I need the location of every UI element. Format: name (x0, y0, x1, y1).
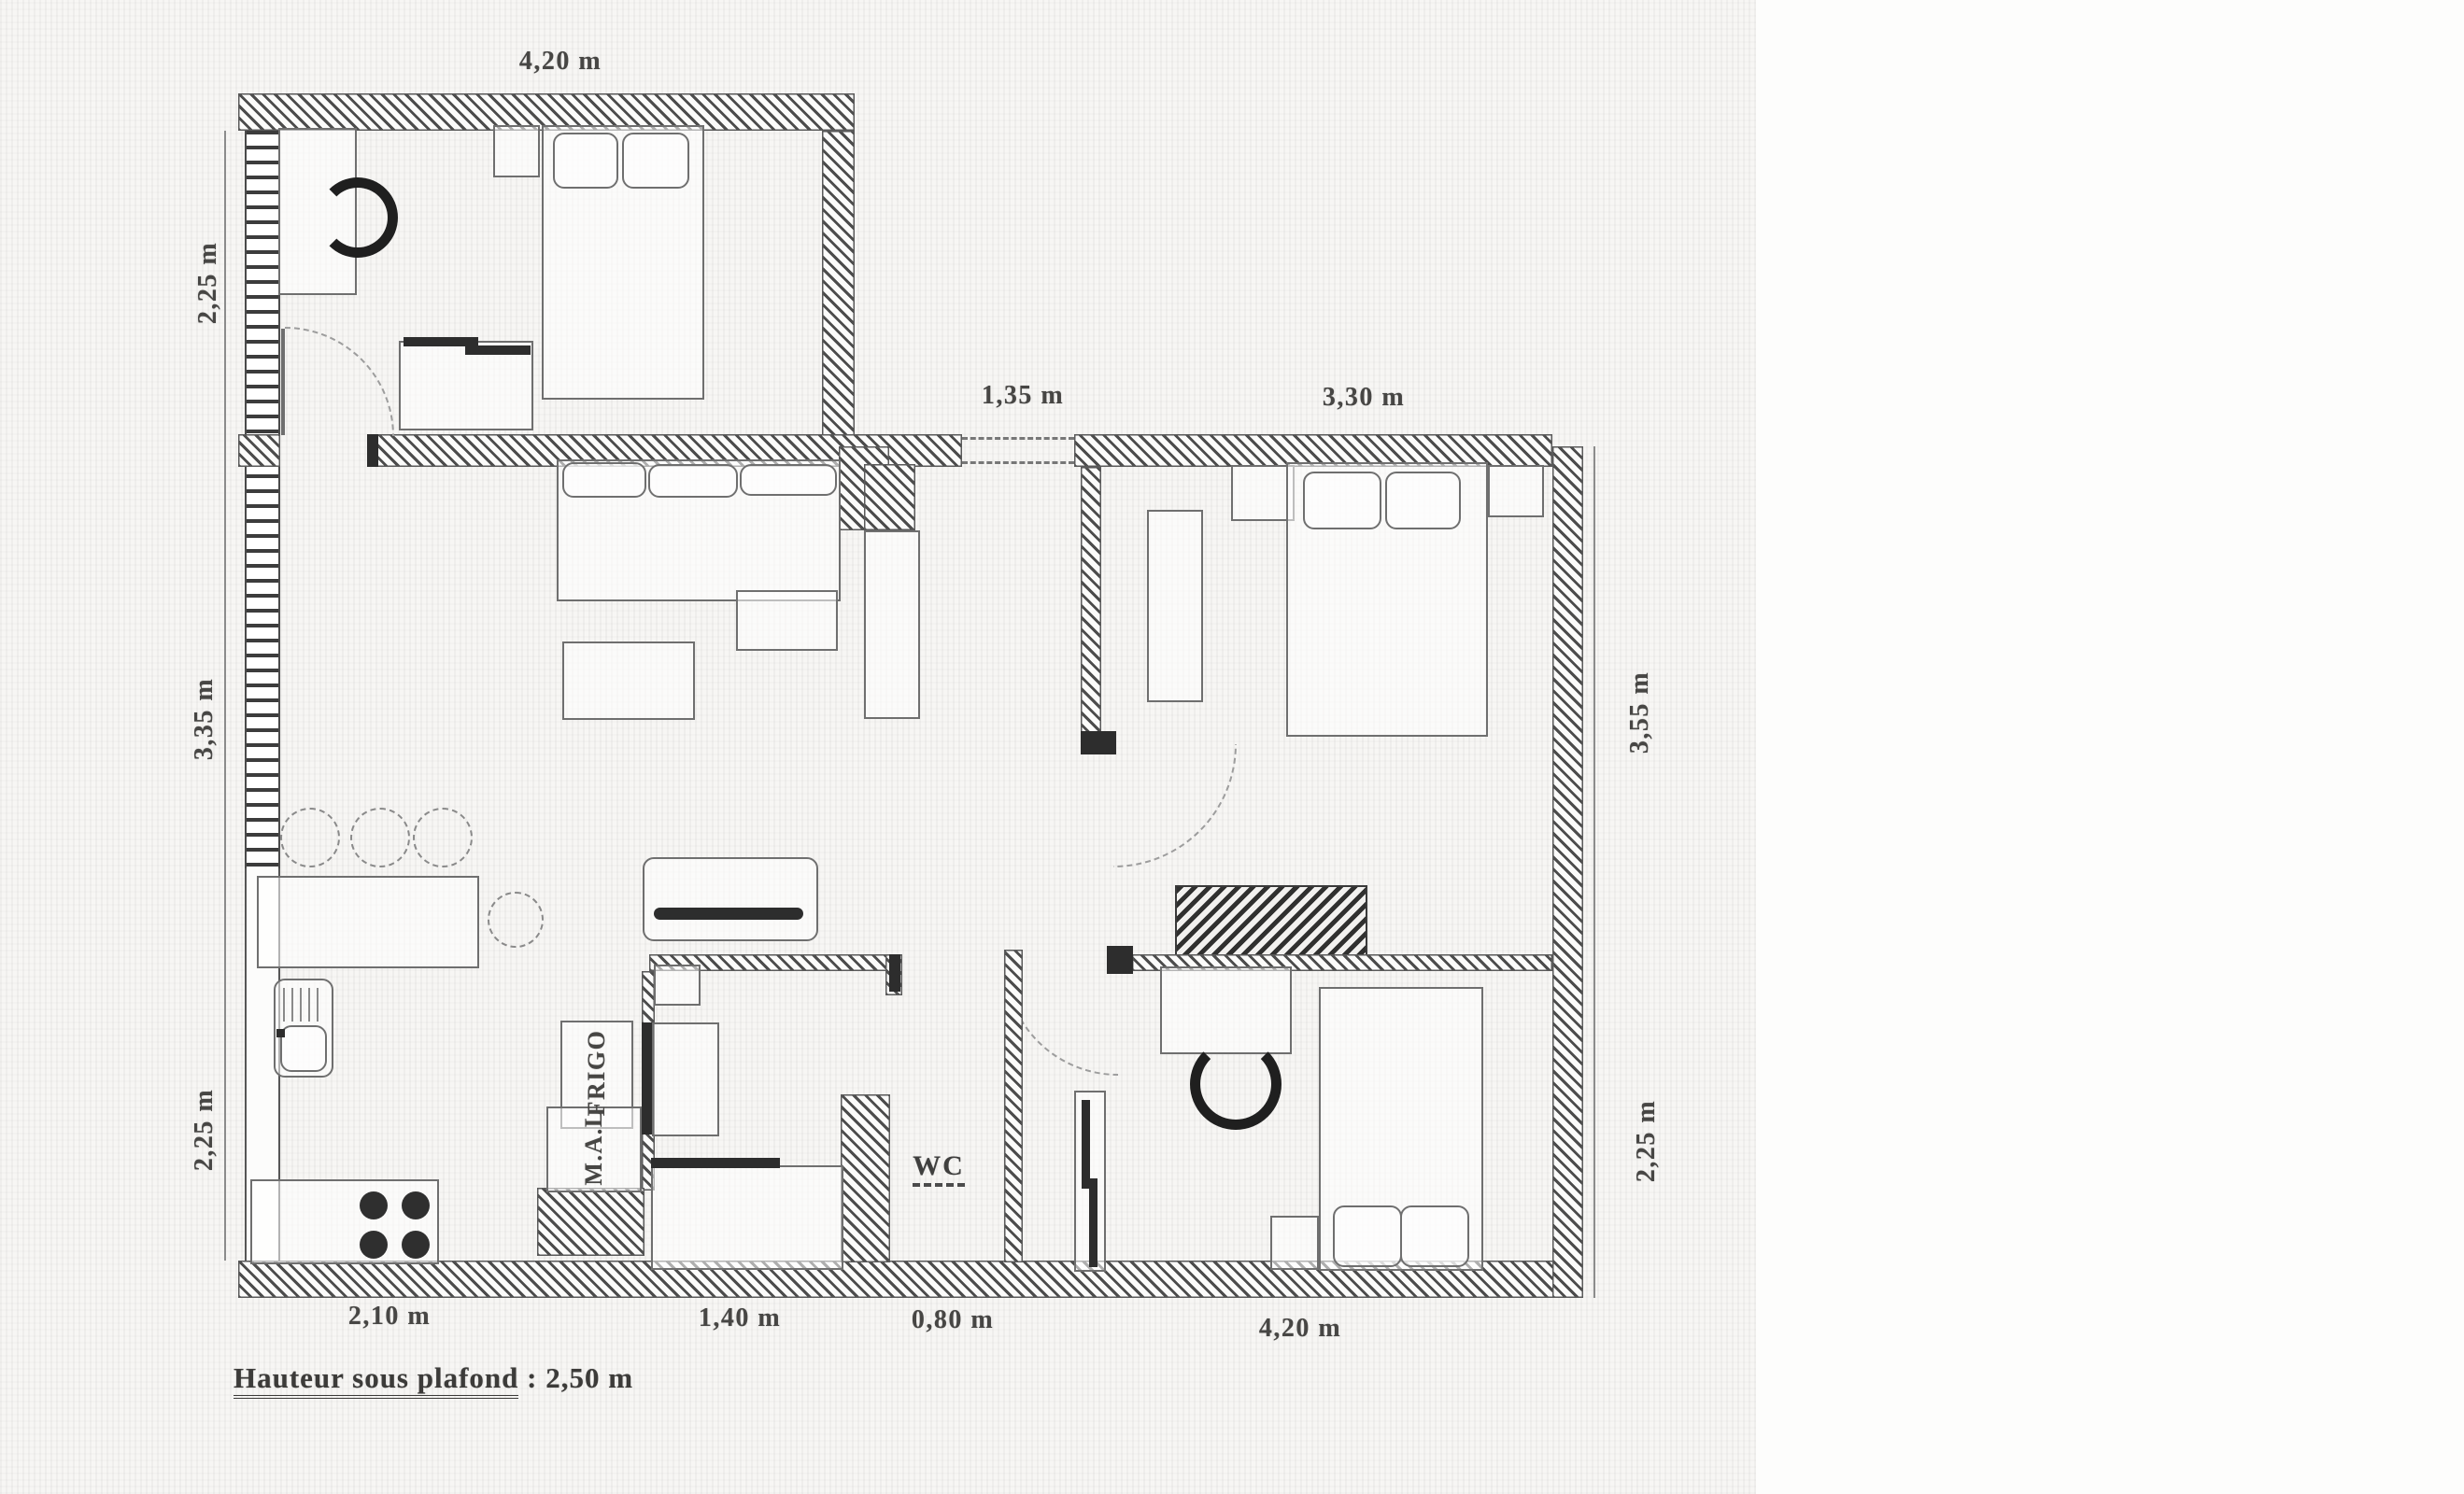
bathtub (651, 1165, 843, 1270)
pillow-bedroom2-left (1303, 472, 1381, 529)
dim-top-room1: 4,20 m (495, 47, 626, 77)
pillow-bedroom2-right (1385, 472, 1461, 529)
tv-sideboard-line (654, 908, 803, 920)
dim-bedroom2-width: 3,30 m (1298, 383, 1429, 413)
sink-tap (276, 1029, 285, 1037)
ceiling-height-value: 2,50 m (545, 1361, 633, 1394)
wc-label-wrap: WC (904, 1150, 973, 1182)
dining-chair-3 (413, 808, 473, 867)
dim-left-middle: 3,35 m (190, 654, 218, 784)
scanned-floor-plan-page: FRIGO M.A.L WC 4,20 m 1,35 m 3,30 m 2,25… (0, 0, 2464, 1494)
dining-chair-4 (488, 892, 544, 948)
dimension-line-right (1593, 446, 1595, 1298)
pillow-bedroom3-left (1333, 1205, 1402, 1267)
dining-table (257, 876, 479, 968)
dim-right-bottom: 2,25 m (1632, 1076, 1660, 1206)
sofa-chaise (736, 590, 838, 651)
wardrobe-bedroom2 (1147, 510, 1203, 702)
desk-shelf-room1-b (465, 345, 531, 355)
dim-bottom-bedroom3: 4,20 m (1235, 1314, 1366, 1344)
radiator-bar-1 (1082, 1100, 1090, 1189)
door-jamb-bath (889, 954, 900, 992)
bath-shelf (654, 965, 701, 1006)
pillow-bedroom3-right (1400, 1205, 1469, 1267)
bath-vanity (652, 1022, 719, 1136)
sink-drainer-lines (283, 988, 320, 1022)
dim-left-top: 2,25 m (193, 218, 221, 348)
entry-opening-dashed-top (962, 437, 1074, 440)
technical-duct-block (1175, 885, 1367, 958)
dim-right-top: 3,55 m (1625, 647, 1653, 778)
ceiling-height-note: Hauteur sous plafond : 2,50 m (234, 1361, 633, 1395)
chair-bedroom3 (1190, 1038, 1282, 1130)
coffee-table (562, 641, 695, 720)
washing-machine-label: M.A.L (580, 1101, 604, 1194)
sofa-cushion-1 (562, 462, 646, 498)
tv-sideboard (643, 857, 818, 941)
wall-bath-wc-divider (841, 1094, 890, 1262)
dim-bottom-kitchen: 2,10 m (324, 1302, 455, 1332)
wc-label: WC (913, 1150, 965, 1187)
nightstand-room1 (493, 125, 540, 177)
hall-closet (864, 530, 920, 719)
door-jamb-room1 (367, 434, 378, 467)
pillow-room1-left (553, 133, 618, 189)
dining-chair-1 (280, 808, 340, 867)
radiator-bar-2 (1089, 1178, 1097, 1267)
wall-right (1552, 446, 1583, 1298)
hob-burner-4 (402, 1231, 430, 1259)
dining-chair-2 (350, 808, 410, 867)
hob-burner-3 (360, 1231, 388, 1259)
hob-burner-2 (402, 1191, 430, 1219)
wall-mid-a (238, 434, 280, 467)
wall-room1-right (822, 131, 855, 448)
door-leaf-room1 (281, 329, 285, 435)
wall-left-upper-ladder (245, 131, 280, 868)
dimension-line-left (224, 131, 226, 1261)
door-hinge-bedroom2 (1081, 731, 1116, 754)
dim-left-bottom: 2,25 m (190, 1064, 218, 1195)
bathtub-screen (651, 1158, 780, 1168)
nightstand-bedroom2-right (1488, 465, 1544, 517)
nightstand-bedroom3 (1270, 1216, 1319, 1270)
wall-hall-bedroom2 (1081, 467, 1101, 738)
sofa-cushion-2 (648, 464, 738, 498)
wall-kitchen-stub (537, 1188, 644, 1256)
basin-arc-room1 (318, 177, 398, 258)
wall-wc-right (1004, 950, 1023, 1262)
hob-burner-1 (360, 1191, 388, 1219)
ceiling-height-separator: : (518, 1361, 545, 1394)
dim-bottom-wc: 0,80 m (887, 1305, 1018, 1335)
pillow-room1-right (622, 133, 689, 189)
sofa-cushion-3 (740, 464, 837, 496)
wall-stub-entry (864, 464, 915, 530)
dim-entry-width: 1,35 m (957, 381, 1088, 411)
entry-opening-dashed-bottom (962, 461, 1074, 464)
sink-basin (280, 1025, 327, 1072)
nightstand-bedroom2-left (1231, 465, 1295, 521)
dim-bottom-bath: 1,40 m (674, 1304, 805, 1333)
ceiling-height-label: Hauteur sous plafond (234, 1361, 518, 1399)
